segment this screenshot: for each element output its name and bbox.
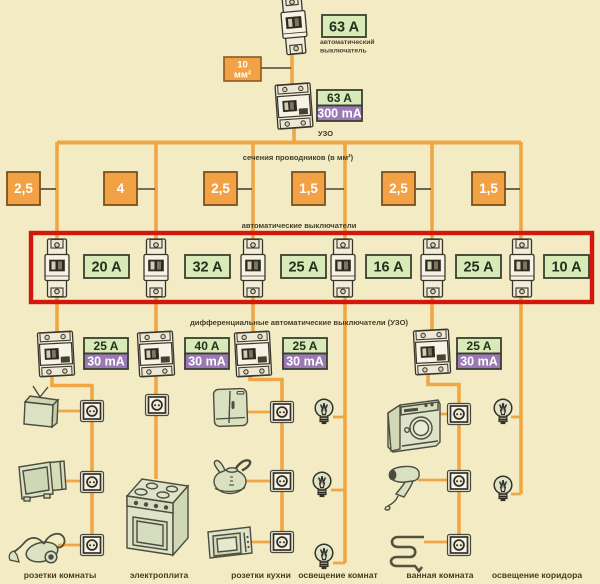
svg-text:освещение комнат: освещение комнат <box>298 570 377 580</box>
svg-text:300 mA: 300 mA <box>317 107 361 121</box>
svg-text:УЗО: УЗО <box>318 129 333 138</box>
svg-text:25 A: 25 A <box>94 339 119 353</box>
svg-text:25 A: 25 A <box>293 339 318 353</box>
svg-text:розетки кухни: розетки кухни <box>231 570 291 580</box>
svg-text:автоматические выключатели: автоматические выключатели <box>242 221 357 230</box>
svg-text:сечения проводников (в мм²): сечения проводников (в мм²) <box>243 153 354 162</box>
svg-text:63 A: 63 A <box>327 91 352 105</box>
svg-text:32 A: 32 A <box>192 260 223 276</box>
svg-text:63 A: 63 A <box>329 20 360 36</box>
svg-text:освещение коридора: освещение коридора <box>492 570 582 580</box>
svg-text:мм²: мм² <box>234 70 251 81</box>
svg-text:40 A: 40 A <box>195 339 220 353</box>
svg-text:10 A: 10 A <box>551 260 582 276</box>
svg-text:1,5: 1,5 <box>299 181 318 196</box>
svg-text:25 A: 25 A <box>467 339 492 353</box>
svg-text:30 mA: 30 mA <box>286 355 324 369</box>
svg-text:дифференциальные автоматически: дифференциальные автоматические выключат… <box>190 318 408 327</box>
svg-text:автоматический: автоматический <box>320 38 375 46</box>
svg-text:ванная комната: ванная комната <box>406 570 473 580</box>
svg-text:16 A: 16 A <box>373 260 404 276</box>
svg-text:2,5: 2,5 <box>211 181 230 196</box>
svg-text:розетки комнаты: розетки комнаты <box>24 570 97 580</box>
svg-text:2,5: 2,5 <box>14 181 33 196</box>
svg-text:20 A: 20 A <box>91 260 122 276</box>
svg-text:4: 4 <box>117 181 125 196</box>
svg-text:25 A: 25 A <box>463 260 494 276</box>
svg-text:2,5: 2,5 <box>389 181 408 196</box>
svg-text:1,5: 1,5 <box>479 181 498 196</box>
svg-text:30 mA: 30 mA <box>87 355 125 369</box>
svg-text:выключатель: выключатель <box>320 48 367 55</box>
svg-text:30 mA: 30 mA <box>188 355 226 369</box>
svg-text:25 A: 25 A <box>288 260 319 276</box>
svg-text:электроплита: электроплита <box>130 570 189 580</box>
svg-text:30 mA: 30 mA <box>460 355 498 369</box>
